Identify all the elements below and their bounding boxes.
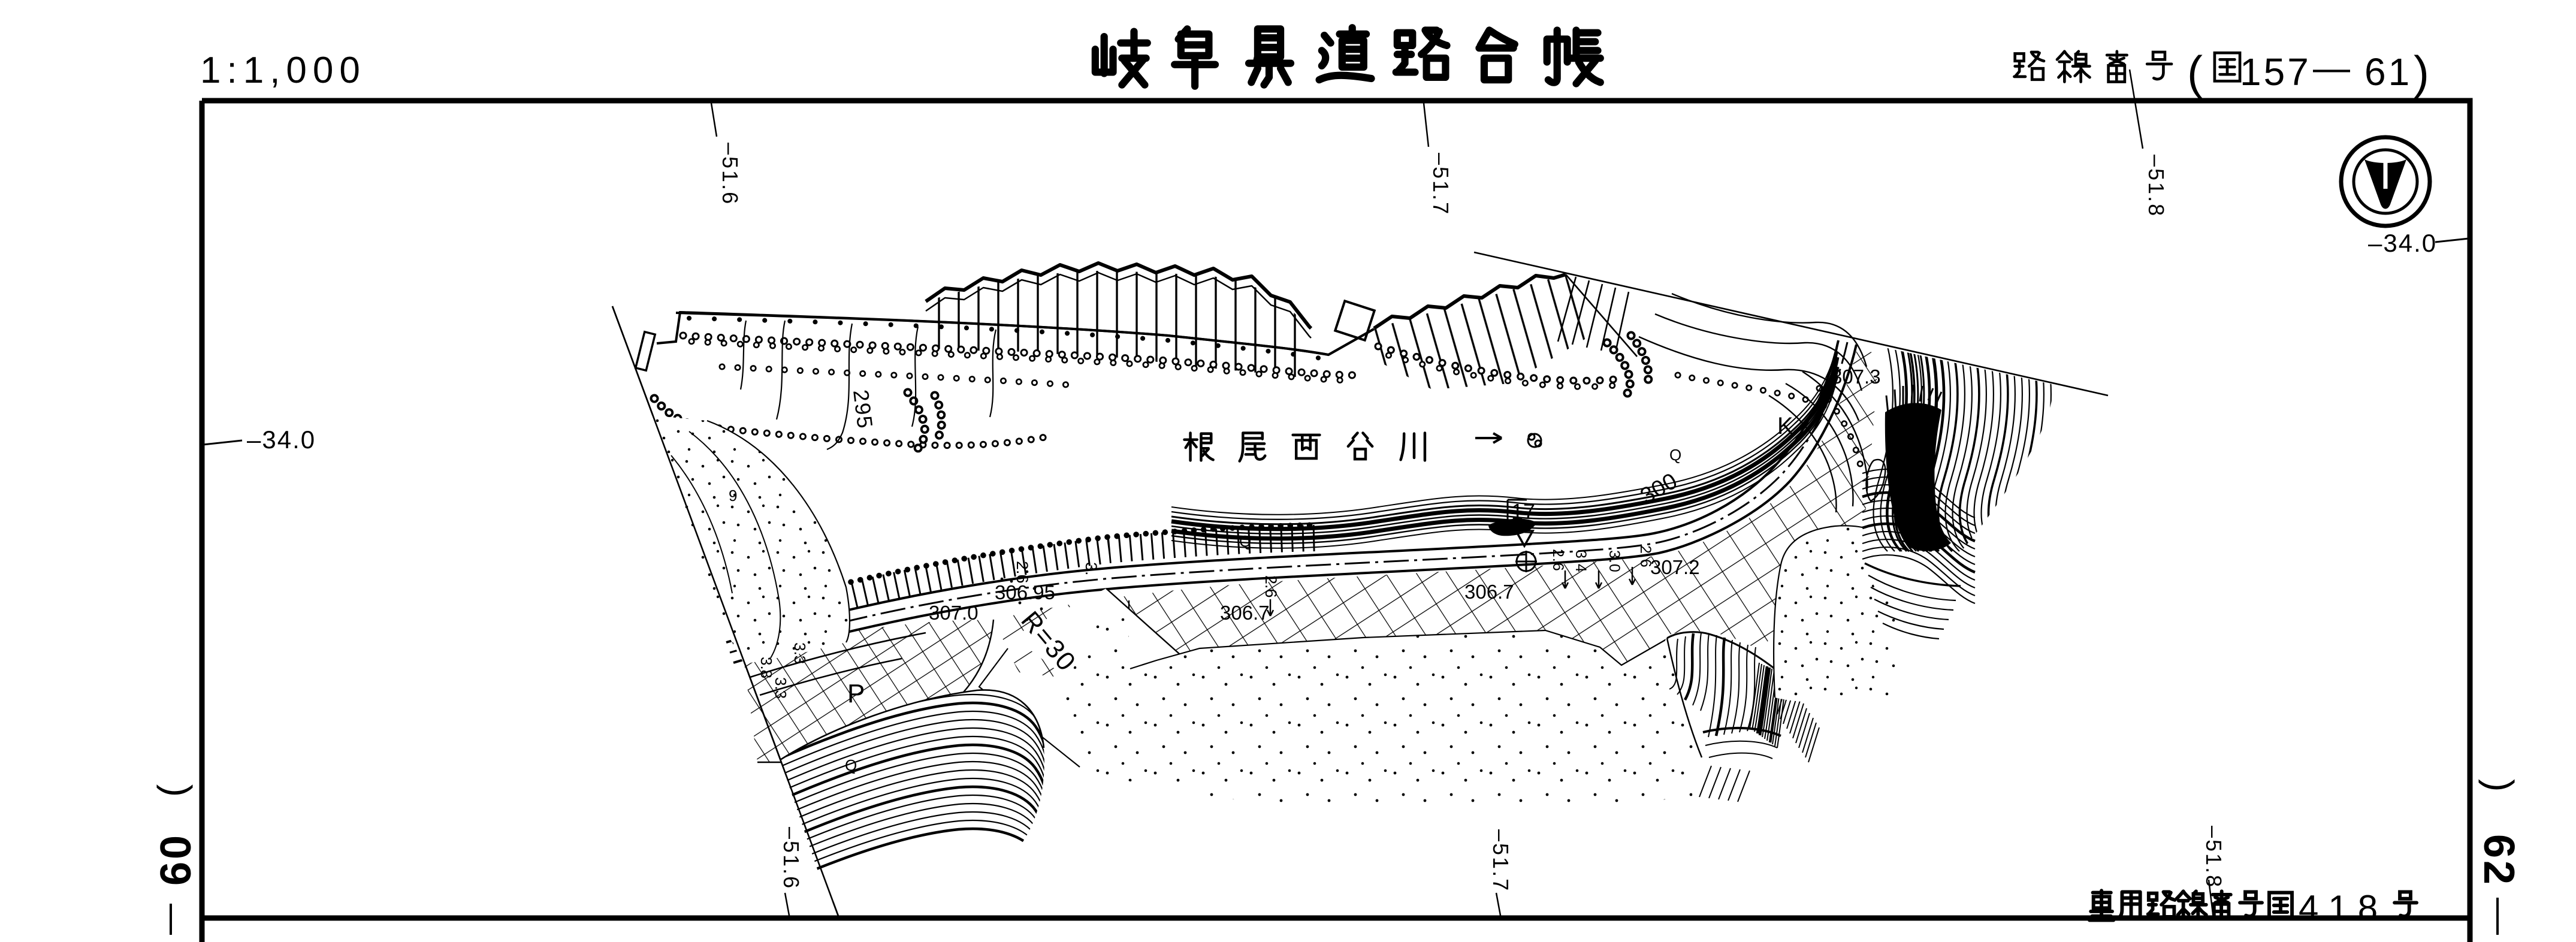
svg-text:–51.8: –51.8 [2144,155,2169,218]
svg-text:306.95: 306.95 [995,581,1055,603]
svg-text:): ) [2478,779,2521,792]
svg-text:1:1,000: 1:1,000 [200,50,366,91]
svg-text:3.8: 3.8 [757,657,775,678]
svg-text:–51.8: –51.8 [2201,826,2226,889]
svg-text:306.7: 306.7 [1220,602,1270,624]
svg-text:157: 157 [2240,50,2311,93]
svg-text:9: 9 [729,487,737,505]
svg-text:P: P [847,679,865,708]
svg-text:K: K [1777,413,1793,439]
svg-text:2.6: 2.6 [1013,561,1031,584]
svg-text:3.3: 3.3 [791,642,809,664]
svg-text:—: — [2313,47,2350,89]
svg-text:3.4: 3.4 [1572,550,1589,573]
svg-text:307.2: 307.2 [1650,556,1700,578]
svg-text:–51.7: –51.7 [1488,829,1513,892]
svg-text:307.0: 307.0 [929,602,979,624]
svg-text:306.7: 306.7 [1464,581,1514,603]
svg-text:61: 61 [2364,50,2412,93]
svg-text:–34.0: –34.0 [247,425,316,454]
svg-text:17: 17 [1511,499,1535,524]
svg-text:Q: Q [1669,446,1681,464]
svg-text:3.: 3. [1082,562,1100,576]
svg-text:60: 60 [152,833,200,886]
svg-text:(: ( [2187,46,2203,99]
svg-text:295: 295 [848,388,878,431]
svg-text:62: 62 [2475,834,2523,887]
svg-text:–51.6: –51.6 [779,827,804,890]
svg-text:–51.7: –51.7 [1429,153,1453,216]
svg-text:(: ( [150,784,193,797]
svg-text:–34.0: –34.0 [2368,229,2437,257]
svg-text:2.6: 2.6 [1550,549,1566,572]
svg-text:): ) [2414,46,2429,99]
svg-text:2.6: 2.6 [1262,575,1280,598]
svg-text:3.3: 3.3 [772,677,790,699]
svg-text:Q: Q [1239,532,1251,550]
svg-text:–51.6: –51.6 [718,143,742,206]
svg-text:Q: Q [845,756,857,774]
svg-text:3.0: 3.0 [1606,550,1623,573]
svg-text:418: 418 [2299,888,2387,928]
svg-text:307.3: 307.3 [1831,366,1881,388]
